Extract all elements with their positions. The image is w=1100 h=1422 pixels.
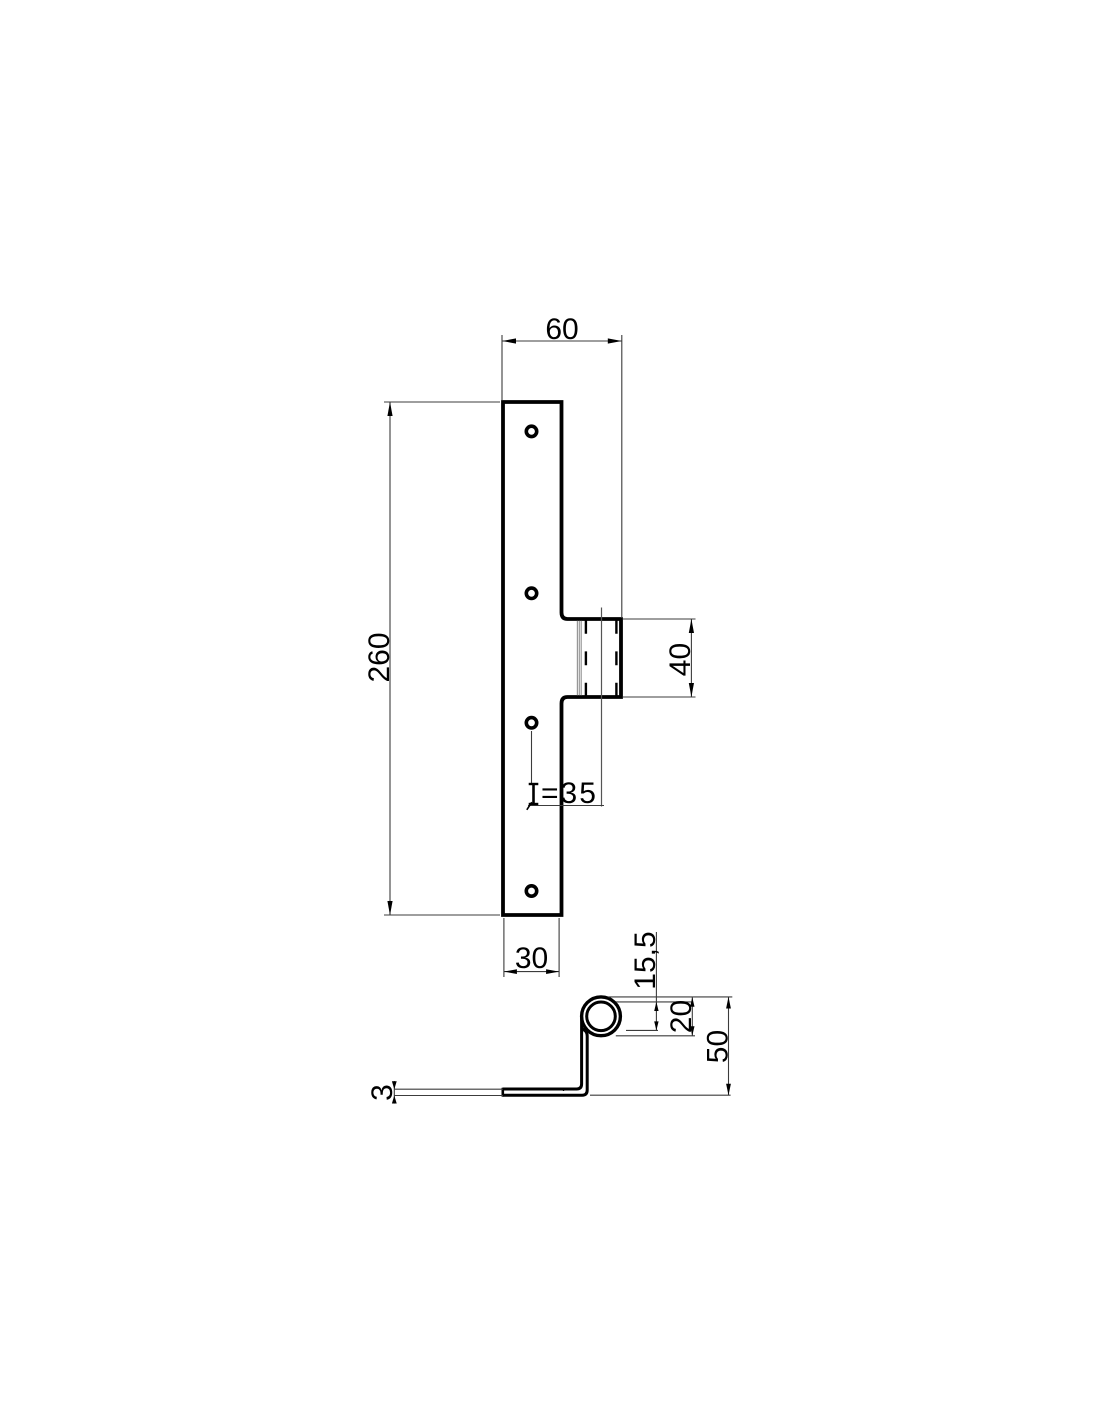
svg-text:40: 40 bbox=[664, 643, 697, 676]
svg-text:3: 3 bbox=[366, 1084, 399, 1101]
svg-text:20: 20 bbox=[665, 1000, 698, 1033]
svg-text:50: 50 bbox=[702, 1030, 735, 1063]
svg-text:30: 30 bbox=[515, 942, 548, 975]
svg-text:60: 60 bbox=[545, 313, 578, 346]
svg-text:15,5: 15,5 bbox=[629, 931, 662, 989]
svg-text:=35: =35 bbox=[541, 777, 598, 810]
svg-text:260: 260 bbox=[363, 632, 396, 682]
